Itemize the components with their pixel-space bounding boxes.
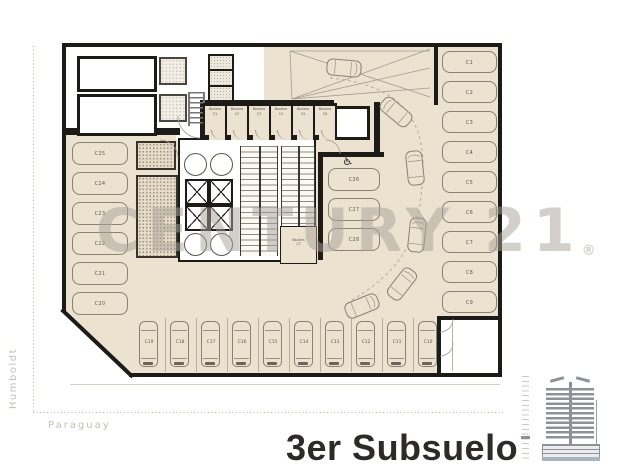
watermark: CENTURY 21® bbox=[96, 196, 596, 266]
street-label-humboldt: Humboldt bbox=[8, 348, 19, 409]
current-level-marker bbox=[521, 436, 530, 439]
building-section-icon bbox=[538, 374, 616, 464]
floorplan-canvas: Baulera C7 Baulera C1 Baulera C2 Baulera… bbox=[0, 0, 619, 466]
drive-path bbox=[330, 78, 423, 300]
car-icons bbox=[326, 59, 426, 320]
registered-mark: ® bbox=[582, 243, 596, 259]
street-label-paraguay: Paraguay bbox=[48, 420, 111, 431]
level-ruler bbox=[522, 376, 529, 462]
page-title: 3er Subsuelo bbox=[286, 427, 518, 466]
sidewalk-line bbox=[70, 384, 500, 385]
watermark-text: CENTURY 21 bbox=[96, 196, 582, 266]
